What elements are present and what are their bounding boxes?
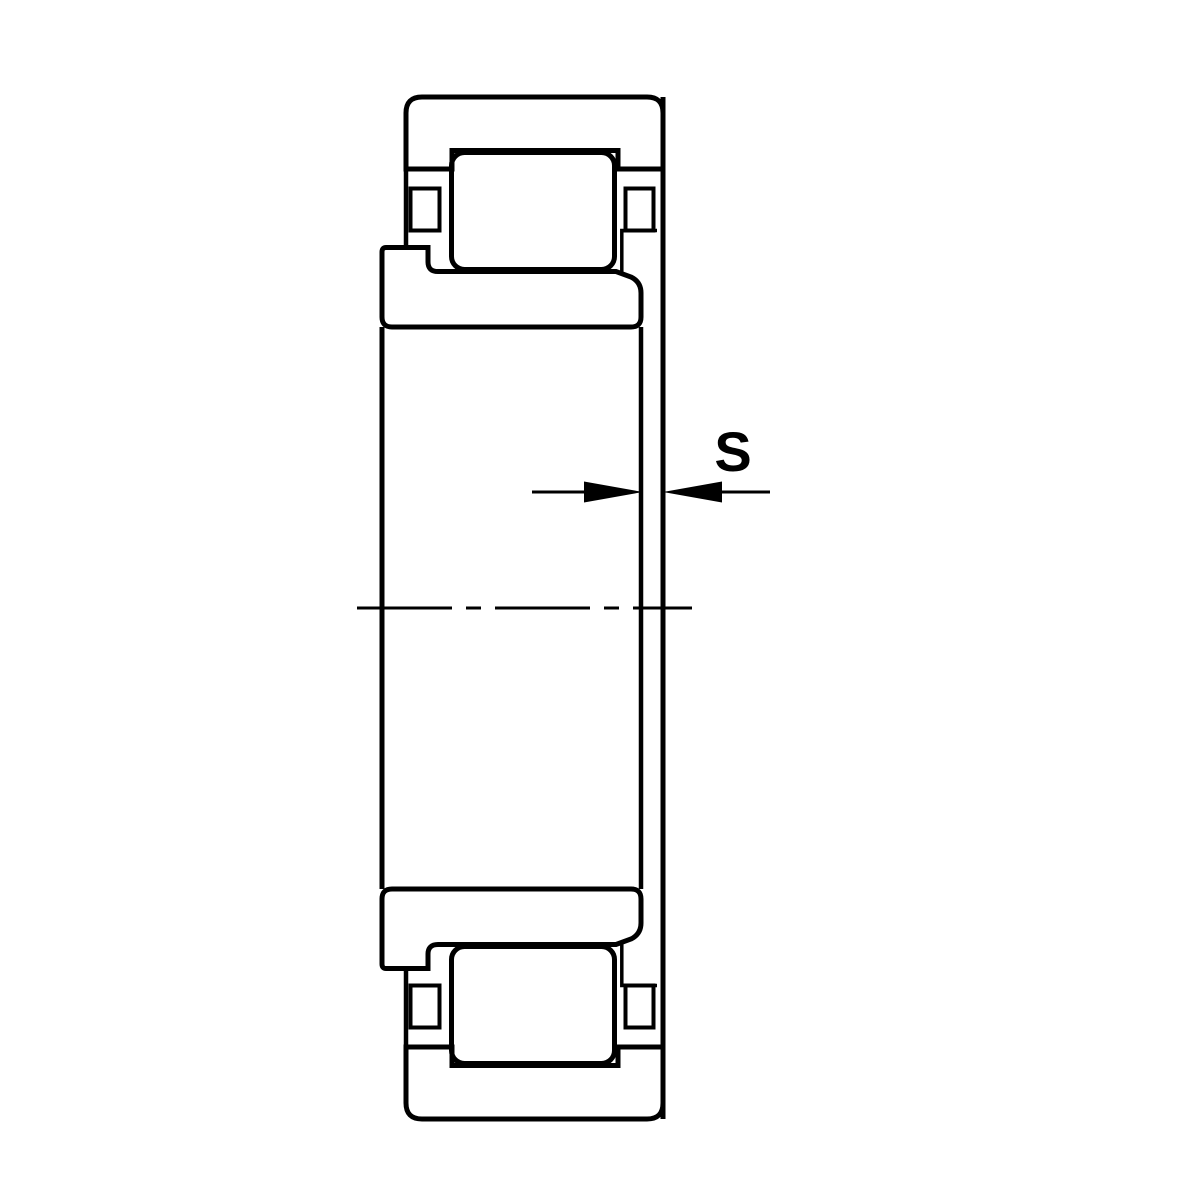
- inner-ring-upper-section: [382, 248, 641, 328]
- roller-upper: [452, 153, 615, 270]
- cage-upper-right: [626, 189, 654, 231]
- cage-lower-left: [411, 986, 440, 1028]
- outer-ring-lower-section: [406, 1047, 663, 1119]
- cage-upper-left: [411, 189, 440, 231]
- dimension-arrow-left-icon: [584, 482, 643, 503]
- outer-ring-upper-section: [406, 97, 663, 169]
- cylindrical-roller-bearing-section-svg: S: [0, 0, 1200, 1200]
- cage-lower-right: [626, 986, 654, 1028]
- dimension-s: S: [532, 420, 770, 503]
- s-dimension-label: S: [714, 420, 751, 483]
- roller-lower: [452, 947, 615, 1064]
- cage-lip-edge-upper: [622, 231, 657, 272]
- inner-ring-lower-section: [382, 889, 641, 969]
- cage-lip-edge-lower: [622, 945, 657, 986]
- dimension-arrow-right-icon: [663, 482, 722, 503]
- bearing-cross-section-drawing: S: [0, 0, 1200, 1200]
